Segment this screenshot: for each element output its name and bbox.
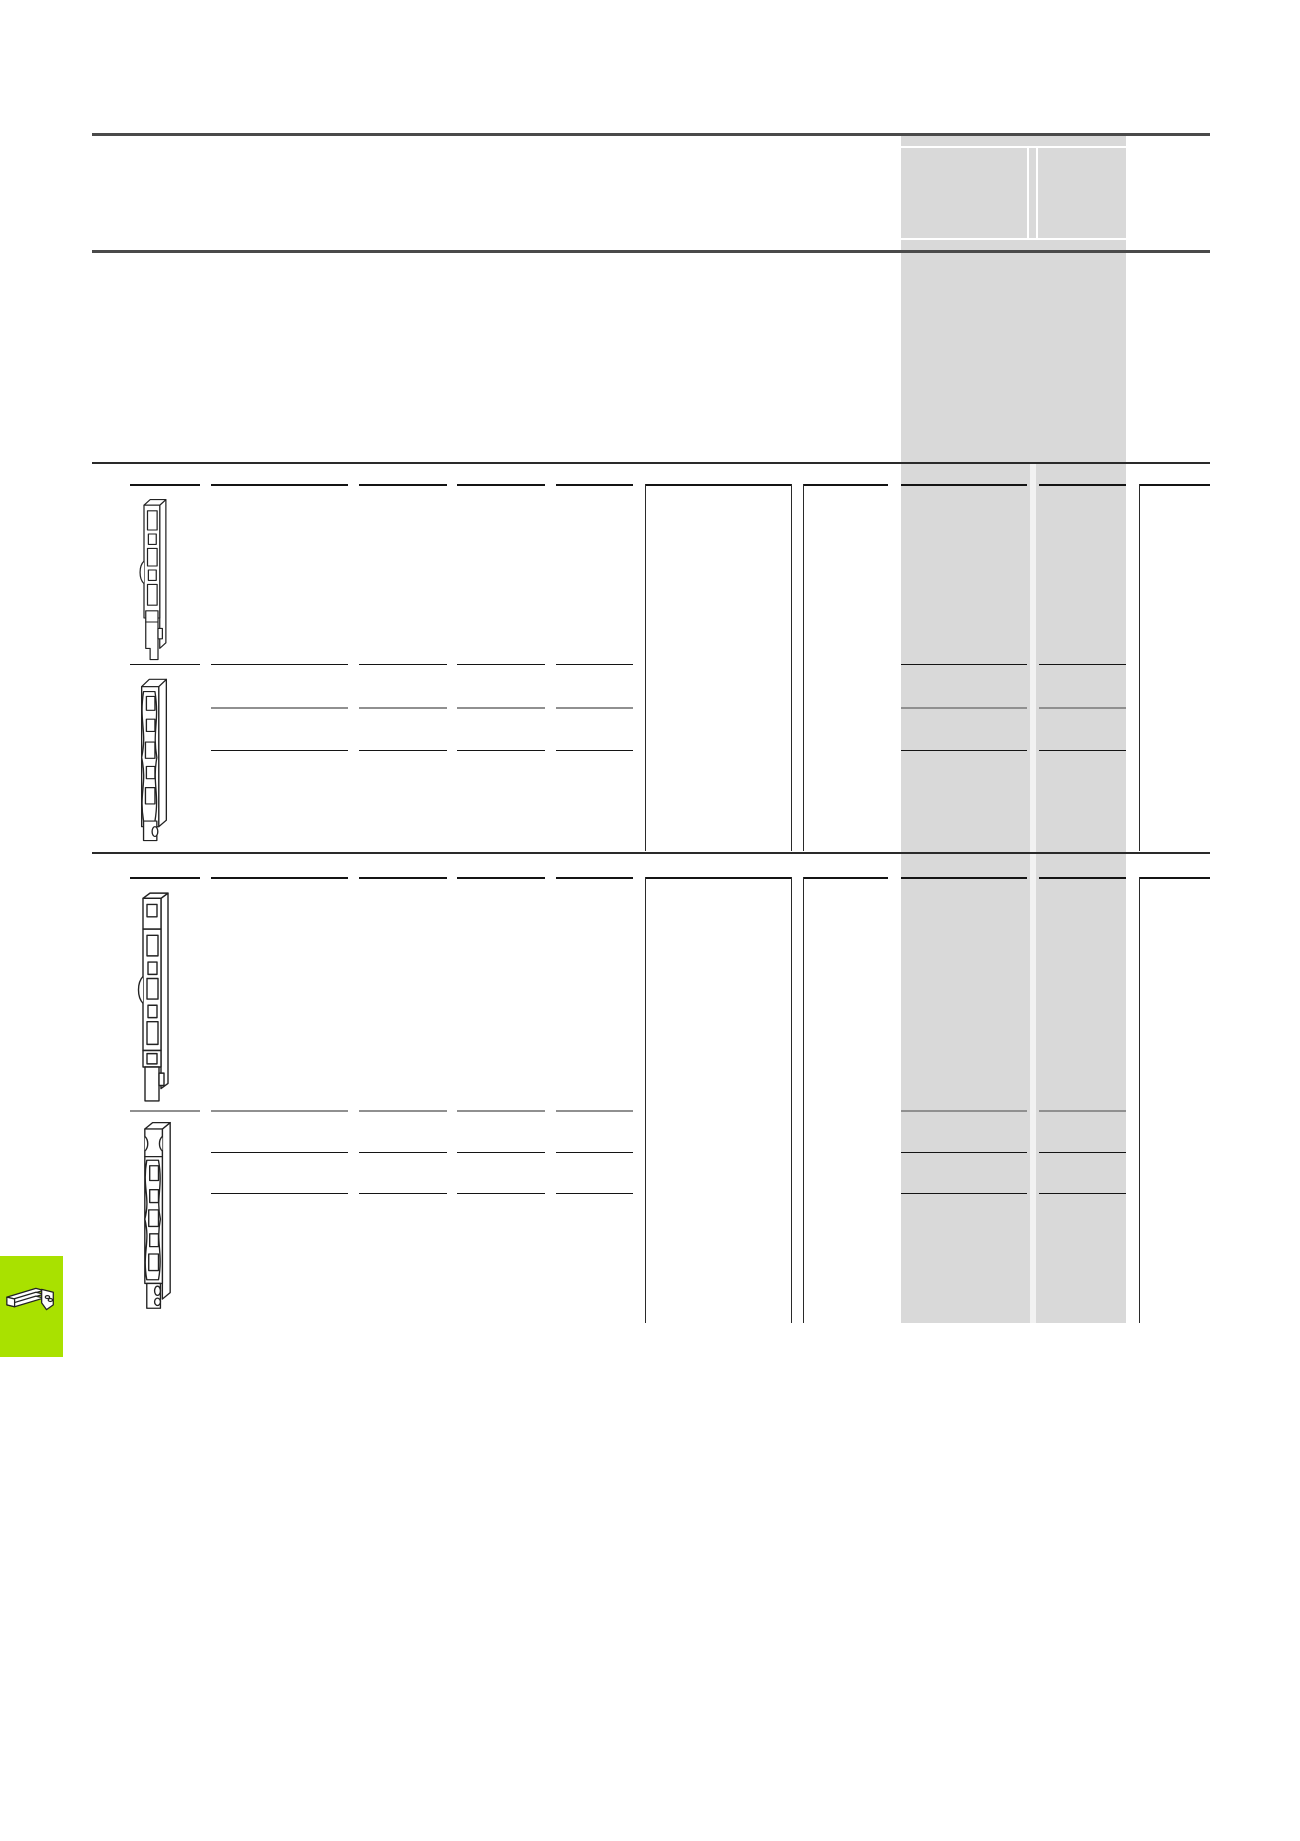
- fuse-switch-strip-icon: [138, 1118, 177, 1311]
- row-line: [901, 707, 1027, 709]
- row-line: [901, 750, 1027, 751]
- row-line: [901, 664, 1027, 665]
- column-header-line: [645, 877, 791, 879]
- row-line: [359, 1152, 447, 1153]
- column-header-line: [556, 484, 633, 486]
- column-header-line: [457, 484, 545, 486]
- column-header-line: [1139, 877, 1210, 879]
- fuse-switch-strip-icon: [135, 672, 173, 843]
- product-illustration-2: [135, 672, 173, 843]
- heavy-rule: [92, 250, 1210, 253]
- column-vertical: [791, 484, 792, 851]
- row-line: [211, 1193, 348, 1194]
- row-line: [359, 750, 447, 751]
- heavy-rule: [92, 133, 1210, 136]
- column-header-line: [556, 877, 633, 879]
- row-line: [901, 1193, 1027, 1194]
- column-vertical: [1139, 484, 1140, 851]
- row-line: [359, 1110, 447, 1112]
- row-line: [1039, 1152, 1126, 1153]
- row-line: [211, 1110, 348, 1112]
- band-header-cell-divider: [1027, 146, 1029, 238]
- product-illustration-3: [135, 888, 175, 1104]
- column-header-line: [901, 484, 1027, 486]
- row-line: [1039, 1193, 1126, 1194]
- row-line: [211, 1152, 348, 1153]
- column-vertical: [803, 484, 804, 851]
- column-vertical: [1139, 877, 1140, 1323]
- column-header-line: [359, 877, 447, 879]
- row-line: [1039, 1110, 1126, 1112]
- column-header-line: [803, 877, 888, 879]
- section-rule: [92, 852, 1210, 854]
- row-line: [1039, 664, 1126, 665]
- column-header-line: [803, 484, 888, 486]
- column-header-line: [901, 877, 1027, 879]
- column-header-line: [211, 484, 348, 486]
- column-header-line: [359, 484, 447, 486]
- band-header-separator: [901, 146, 1126, 148]
- row-line: [359, 664, 447, 665]
- busbar-adapter-icon: [3, 1282, 61, 1318]
- price-column-band: [901, 136, 1126, 1323]
- product-illustration-4: [138, 1118, 177, 1311]
- row-line: [130, 1110, 200, 1112]
- fuse-switch-strip-icon: [137, 494, 172, 662]
- band-column-divider: [1030, 463, 1036, 1323]
- row-line: [457, 1110, 545, 1112]
- band-header-separator: [901, 238, 1126, 240]
- column-header-line: [211, 877, 348, 879]
- column-vertical: [791, 877, 792, 1323]
- row-line: [130, 664, 200, 665]
- row-line: [211, 664, 348, 665]
- table-grid-layer: [0, 0, 1300, 1841]
- column-header-line: [1139, 484, 1210, 486]
- row-line: [457, 750, 545, 751]
- row-line: [556, 664, 633, 665]
- band-header-cell-divider: [1036, 146, 1038, 238]
- column-header-line: [645, 484, 791, 486]
- column-header-line: [1039, 484, 1126, 486]
- column-vertical: [645, 877, 646, 1323]
- column-vertical: [803, 877, 804, 1323]
- row-line: [457, 1193, 545, 1194]
- catalog-page: [0, 0, 1300, 1841]
- column-header-line: [457, 877, 545, 879]
- row-line: [556, 1152, 633, 1153]
- row-line: [1039, 707, 1126, 709]
- row-line: [457, 707, 545, 709]
- fuse-switch-strip-icon: [135, 888, 175, 1104]
- row-line: [901, 1152, 1027, 1153]
- row-line: [556, 1193, 633, 1194]
- row-line: [359, 707, 447, 709]
- column-vertical: [645, 484, 646, 851]
- row-line: [556, 1110, 633, 1112]
- section-rule: [92, 462, 1210, 464]
- row-line: [211, 750, 348, 751]
- row-line: [457, 1152, 545, 1153]
- product-illustration-1: [137, 494, 172, 662]
- column-header-line: [1039, 877, 1126, 879]
- row-line: [901, 1110, 1027, 1112]
- row-line: [457, 664, 545, 665]
- row-line: [211, 707, 348, 709]
- row-line: [556, 707, 633, 709]
- row-line: [359, 1193, 447, 1194]
- row-line: [556, 750, 633, 751]
- column-header-line: [130, 877, 200, 879]
- column-header-line: [130, 484, 200, 486]
- page-edge-tab: [0, 1256, 63, 1357]
- row-line: [1039, 750, 1126, 751]
